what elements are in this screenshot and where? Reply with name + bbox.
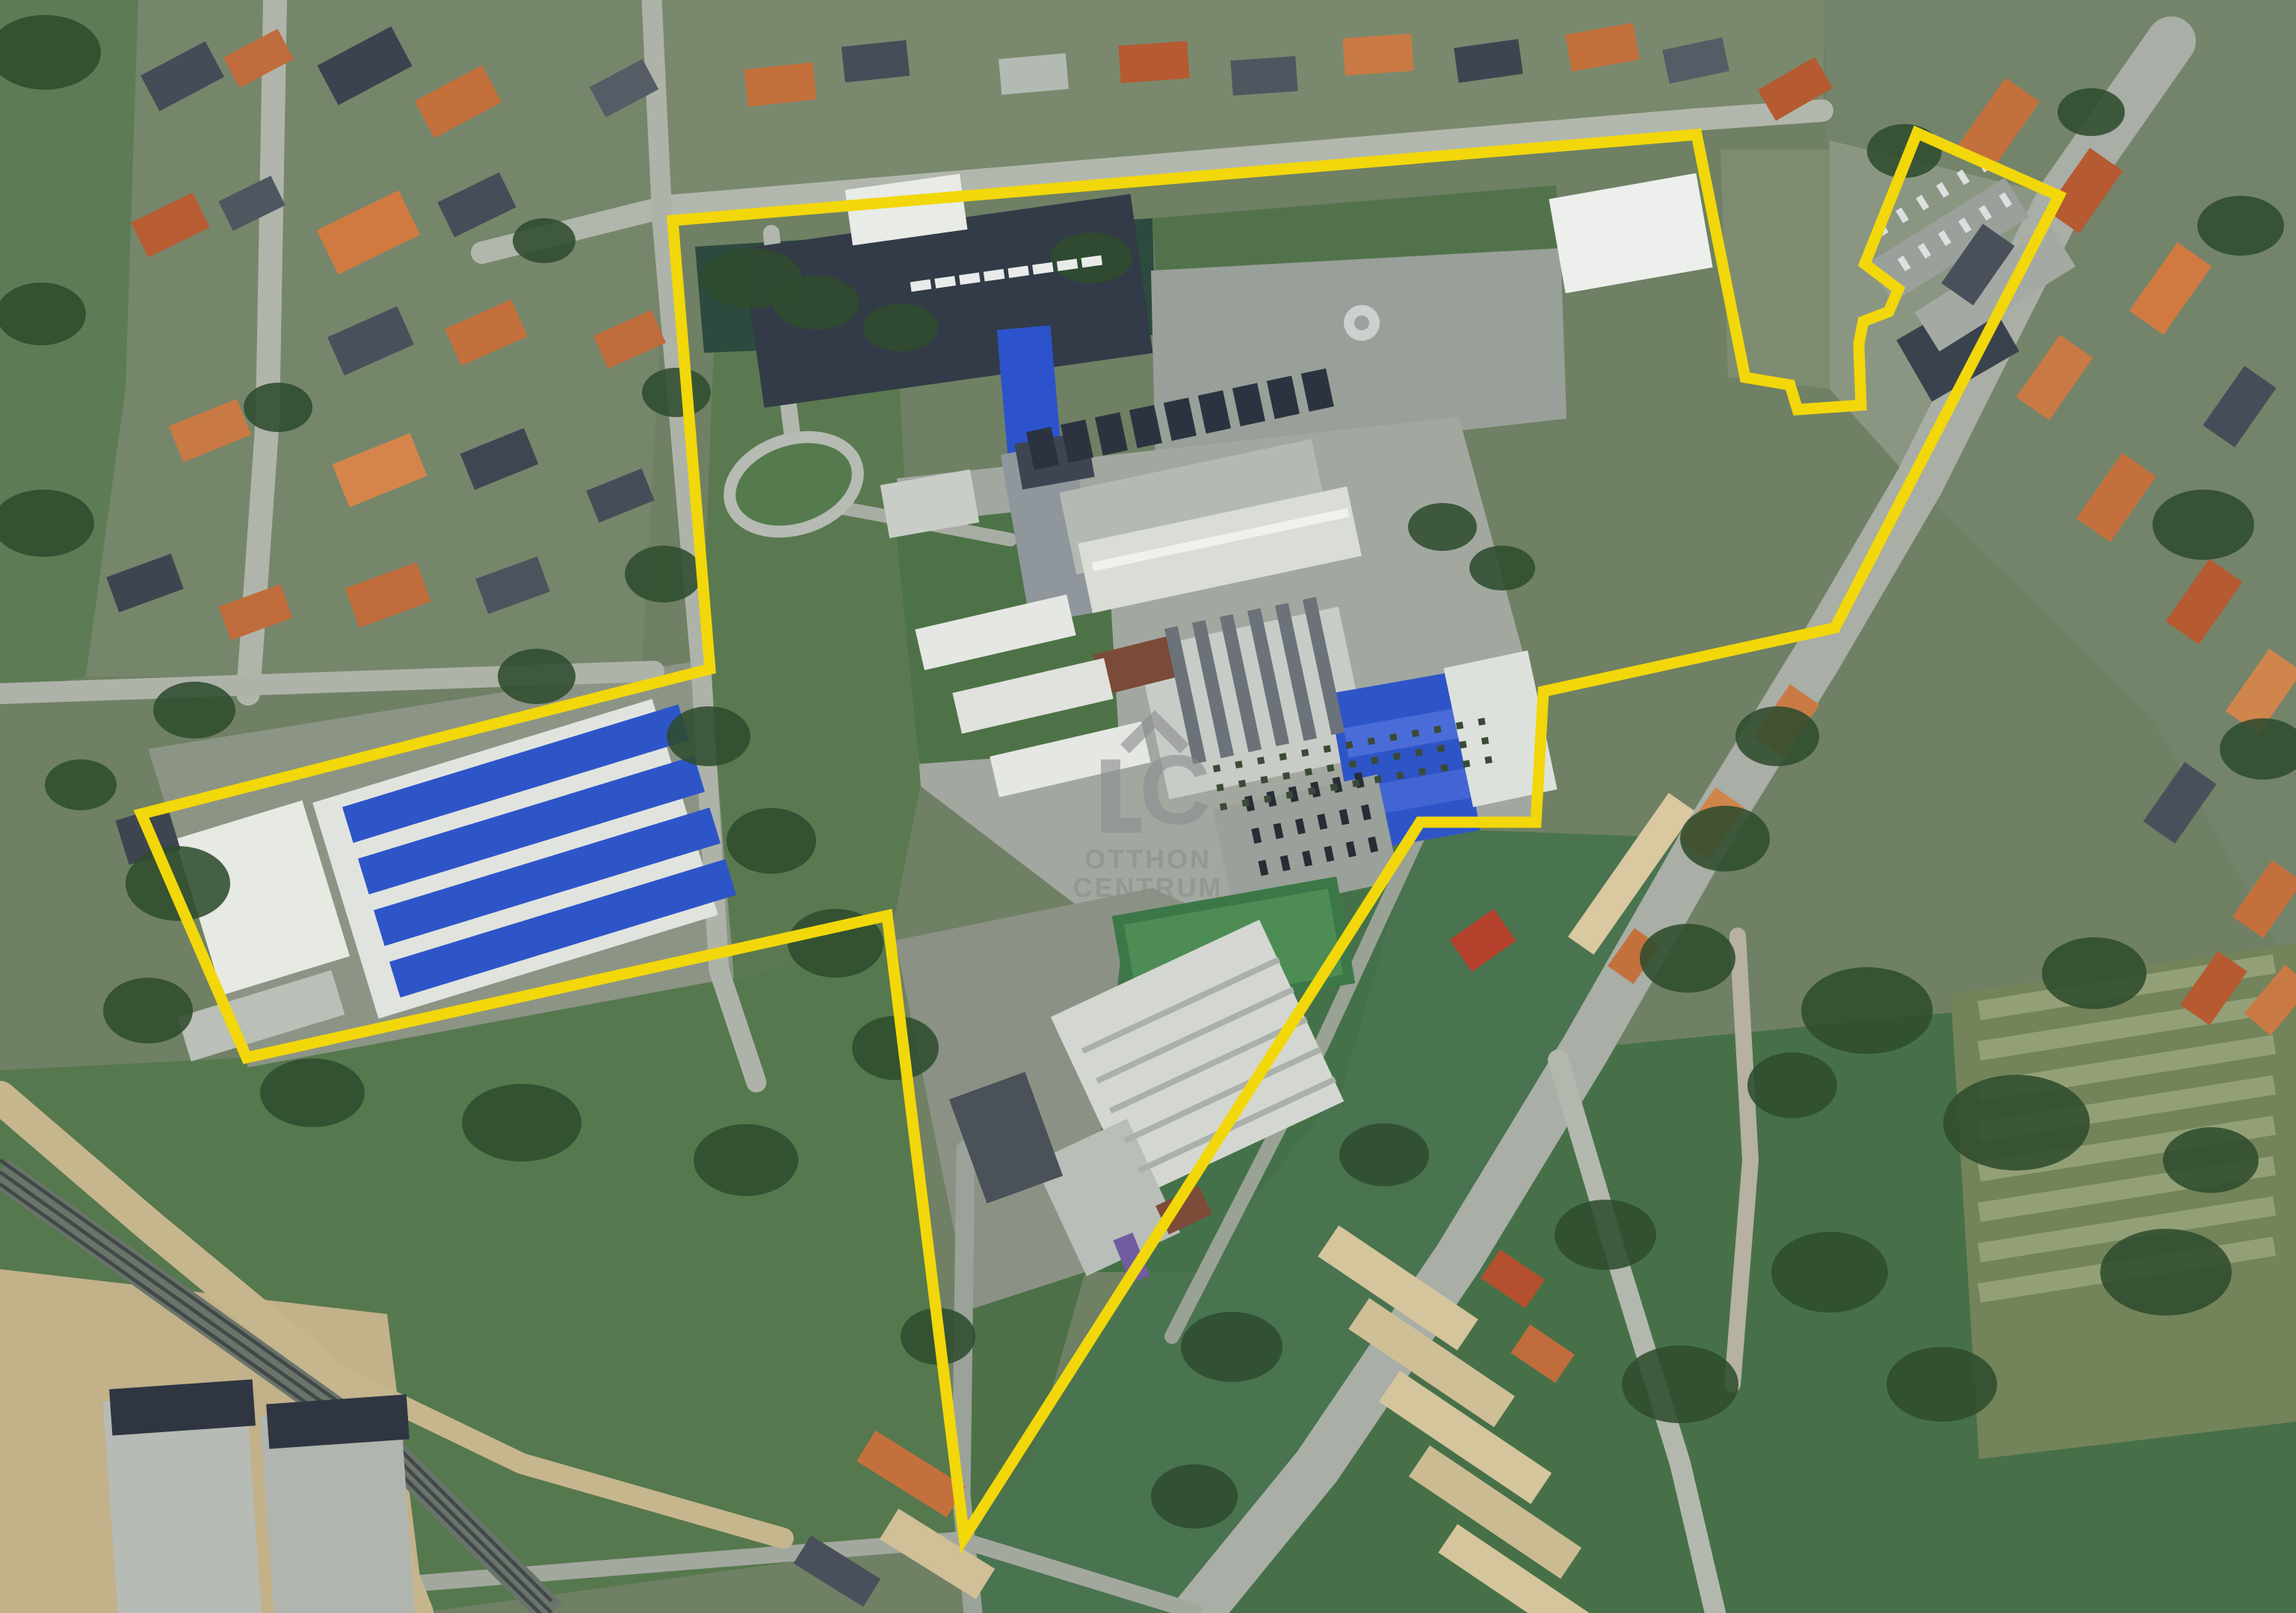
orchard-rows — [1434, 726, 1441, 733]
tree — [625, 546, 703, 602]
orchard-rows — [1260, 776, 1268, 783]
orchard-rows — [1371, 756, 1378, 764]
tree — [1640, 924, 1735, 993]
orchard-rows — [1412, 730, 1419, 737]
tree — [1680, 806, 1770, 872]
orchard-rows — [1393, 753, 1401, 760]
tree — [694, 1124, 798, 1196]
satellite-map[interactable]: C OTTHON CENTRUM — [0, 0, 2296, 1613]
tree — [2152, 490, 2254, 560]
orchard-rows — [1327, 764, 1334, 771]
orchard-rows — [1349, 760, 1357, 768]
orchard-rows — [1264, 795, 1271, 803]
tree — [1771, 1232, 1888, 1313]
tree — [513, 218, 575, 263]
tree — [1801, 967, 1933, 1054]
tree — [773, 276, 860, 330]
tree — [2058, 88, 2125, 136]
water-tower — [1344, 305, 1380, 341]
watermark-line-1: OTTHON — [1084, 844, 1212, 875]
building — [744, 62, 817, 106]
tree — [2042, 937, 2147, 1009]
orchard-rows — [1419, 768, 1426, 775]
tree — [260, 1058, 365, 1127]
orchard-rows — [1220, 803, 1227, 810]
orchard-rows — [1345, 741, 1353, 749]
orchard-rows — [1213, 765, 1220, 772]
building — [999, 53, 1069, 95]
orchard-rows — [1283, 772, 1290, 780]
tree — [2100, 1229, 2232, 1316]
orchard-rows — [1374, 776, 1382, 783]
orchard-rows — [1324, 745, 1331, 753]
orchard-rows — [1301, 749, 1309, 756]
orchard-rows — [1257, 756, 1265, 764]
tree — [462, 1084, 581, 1162]
tree — [103, 978, 193, 1043]
orchard-rows — [1216, 783, 1223, 791]
orchard-rows — [1308, 787, 1315, 795]
orchard-rows — [1484, 756, 1492, 763]
orchard-rows — [1456, 721, 1463, 729]
watermark-logo-bar — [1101, 818, 1141, 833]
tree — [45, 759, 117, 810]
tree — [1622, 1345, 1738, 1423]
tree — [1886, 1347, 1997, 1422]
orchard-rows — [1440, 764, 1448, 771]
tree — [1747, 1052, 1837, 1118]
orchard-rows — [1279, 753, 1286, 760]
orchard-rows — [1463, 760, 1470, 768]
building — [1118, 41, 1189, 83]
orchard-rows — [1389, 733, 1397, 741]
orchard-rows — [1286, 791, 1293, 798]
orchard-rows — [1437, 744, 1445, 752]
tree — [1408, 503, 1477, 551]
tree — [244, 383, 312, 432]
orchard-rows — [1415, 749, 1422, 756]
orchard-rows — [1238, 780, 1246, 787]
orchard-rows — [1241, 799, 1249, 806]
watermark-line-2: CENTRUM — [1073, 872, 1223, 903]
orchard-rows — [1235, 761, 1242, 768]
tree — [1735, 706, 1819, 766]
orchard-rows — [1478, 718, 1485, 725]
tree — [642, 368, 711, 417]
orchard-rows — [1459, 741, 1466, 748]
building — [842, 40, 910, 83]
orchard-rows — [1396, 771, 1404, 779]
building — [1230, 56, 1297, 96]
tree — [1151, 1464, 1238, 1529]
tree — [498, 649, 575, 704]
water-tower-inner — [1354, 315, 1369, 330]
tree — [667, 706, 750, 766]
tree — [153, 682, 235, 738]
orchard-rows — [1304, 768, 1312, 776]
orchard-rows — [1368, 737, 1375, 744]
tree — [0, 283, 86, 345]
tree — [726, 808, 816, 874]
tree — [863, 303, 938, 351]
tree — [1943, 1075, 2090, 1171]
tree — [1339, 1123, 1429, 1186]
tree — [1555, 1200, 1656, 1270]
tree — [1181, 1312, 1283, 1382]
orchard-rows — [1352, 780, 1360, 787]
tree — [2163, 1127, 2259, 1193]
orchard-rows — [1330, 783, 1338, 791]
building — [1342, 34, 1413, 75]
tree — [1469, 546, 1535, 590]
tree — [2197, 196, 2284, 256]
orchard-rows — [1481, 737, 1489, 744]
satellite-map-viewport[interactable]: C OTTHON CENTRUM — [0, 0, 2296, 1613]
watermark-logo-letter: C — [1139, 735, 1210, 845]
